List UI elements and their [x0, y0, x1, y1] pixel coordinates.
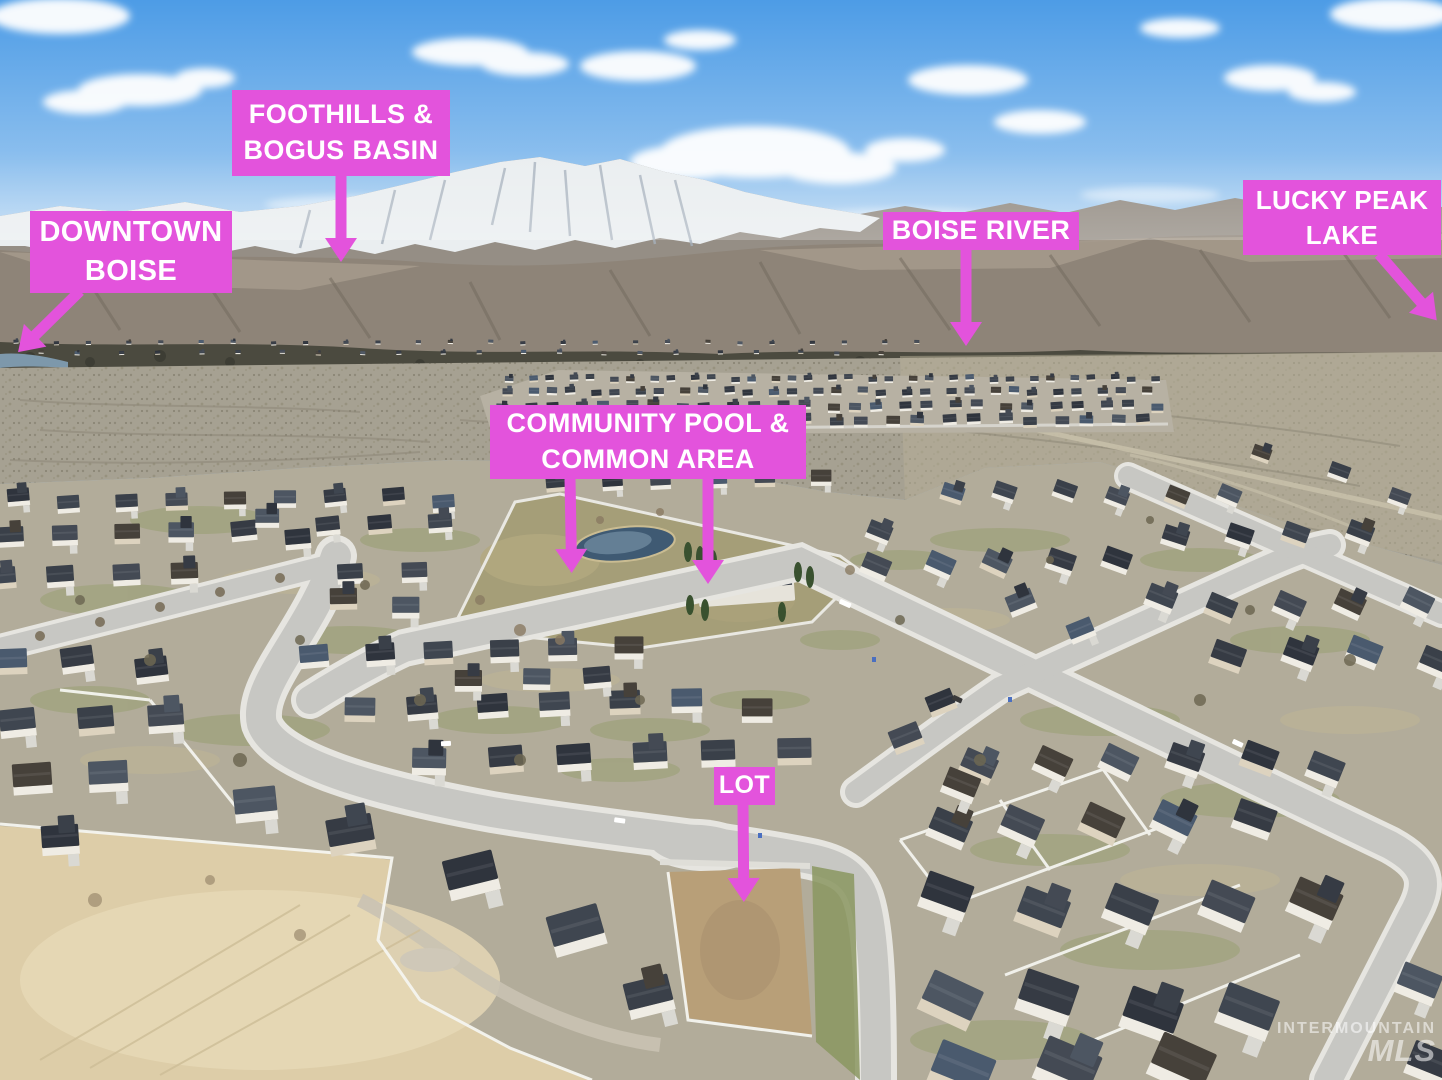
label-community-pool-common-area: COMMUNITY POOL & COMMON AREA [490, 405, 806, 479]
label-boise-river: BOISE RIVER [883, 212, 1079, 250]
label-downtown-boise: DOWNTOWN BOISE [30, 211, 232, 293]
label-line: FOOTHILLS & [249, 97, 433, 133]
label-line: LUCKY PEAK [1256, 183, 1429, 218]
label-line: COMMUNITY POOL & [507, 406, 790, 442]
label-line: BOGUS BASIN [244, 133, 439, 169]
label-line: DOWNTOWN [39, 213, 222, 252]
label-line: BOISE RIVER [892, 213, 1070, 249]
label-lot: LOT [714, 767, 775, 805]
label-lucky-peak-lake: LUCKY PEAK LAKE [1243, 180, 1441, 255]
label-foothills-bogus-basin: FOOTHILLS & BOGUS BASIN [232, 90, 450, 176]
aerial-photo-scene [0, 0, 1442, 1080]
label-line: COMMON AREA [541, 442, 754, 478]
annotated-aerial-photo: FOOTHILLS & BOGUS BASIN DOWNTOWN BOISE B… [0, 0, 1442, 1080]
label-line: BOISE [85, 252, 177, 291]
label-line: LAKE [1306, 218, 1378, 253]
label-line: LOT [719, 769, 770, 802]
